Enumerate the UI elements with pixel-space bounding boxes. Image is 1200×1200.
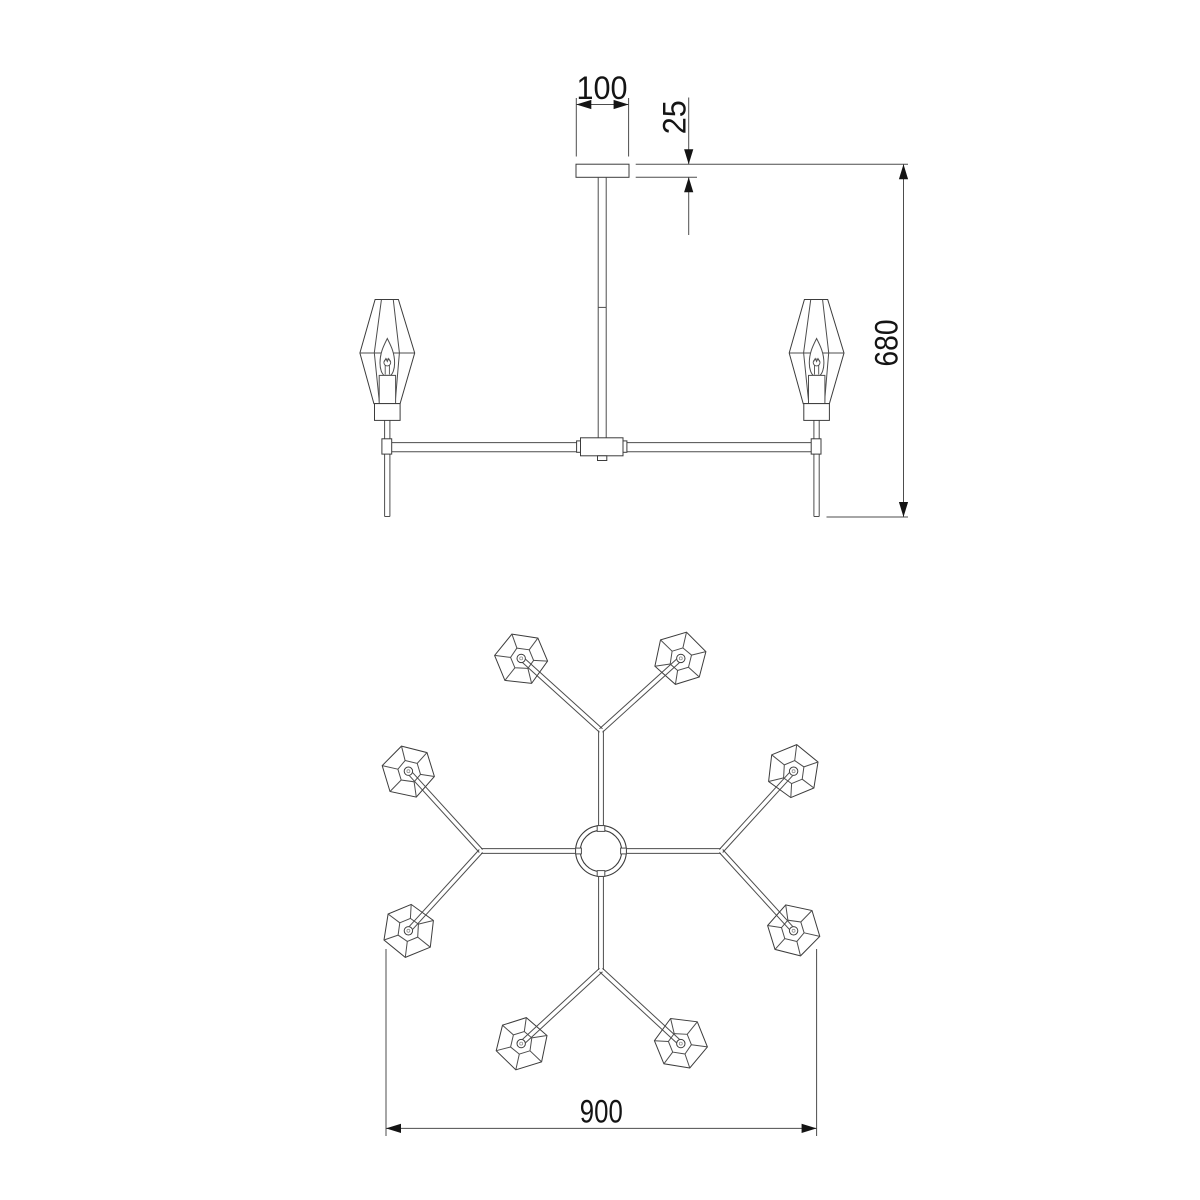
- svg-text:680: 680: [869, 320, 905, 367]
- svg-text:900: 900: [580, 1094, 623, 1130]
- svg-text:100: 100: [577, 70, 628, 106]
- svg-text:25: 25: [656, 100, 692, 134]
